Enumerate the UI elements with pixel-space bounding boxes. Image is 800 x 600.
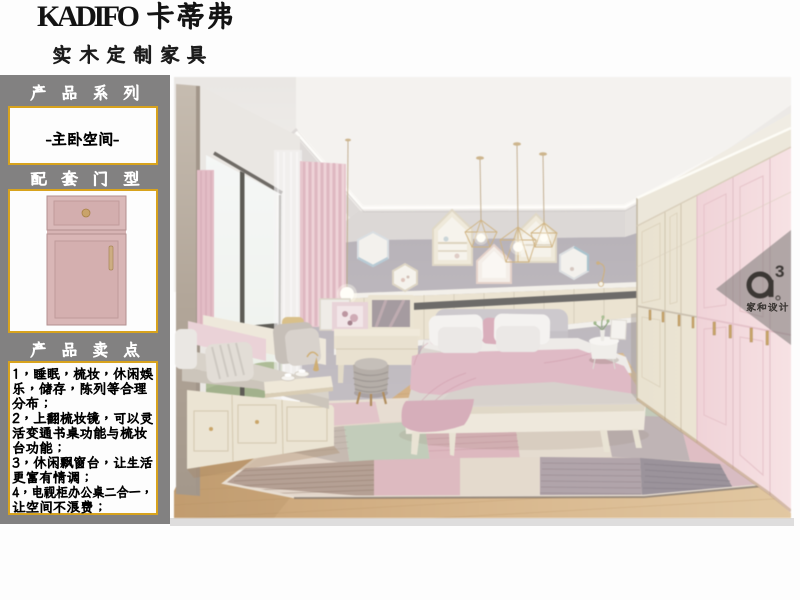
svg-text:3: 3 bbox=[775, 262, 784, 281]
svg-text:KADIFO: KADIFO bbox=[37, 0, 140, 33]
